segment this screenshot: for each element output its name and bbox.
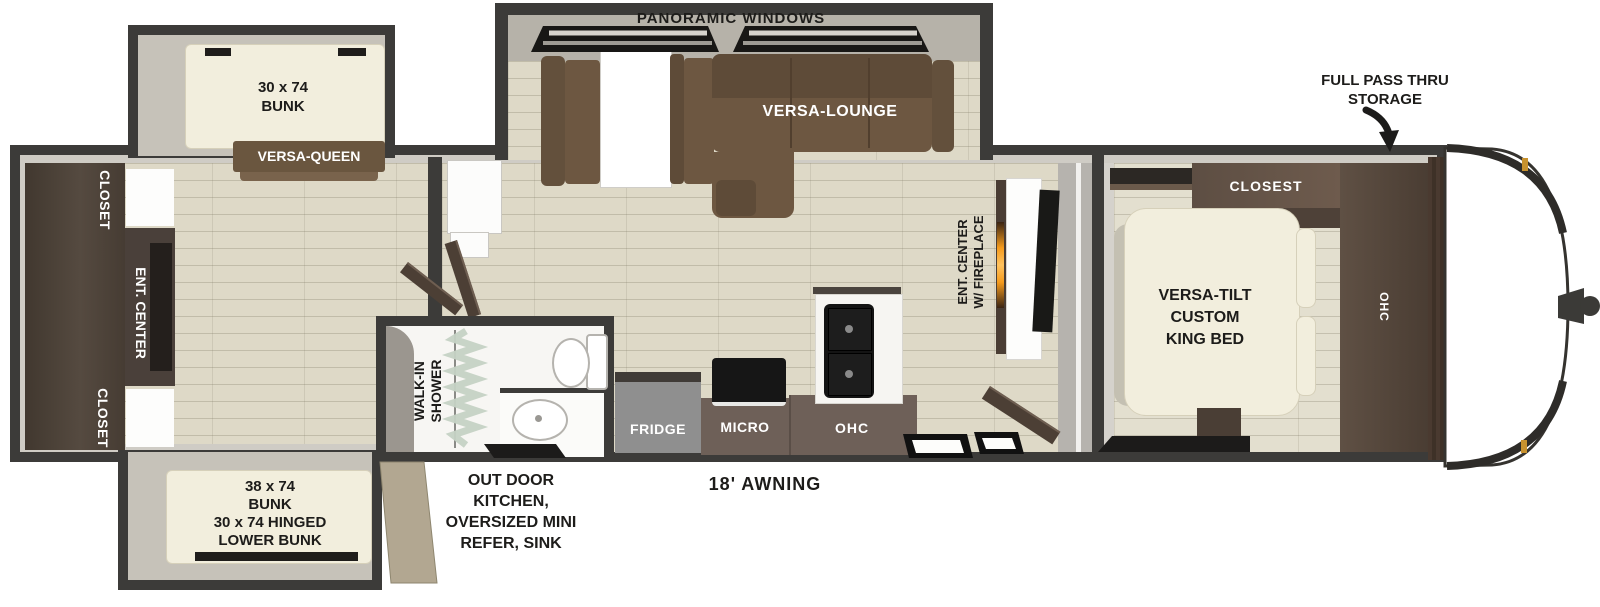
fridge-label: FRIDGE	[615, 421, 701, 437]
pass-thru-line2: STORAGE	[1300, 90, 1470, 109]
outdoor-kitchen-label: OUT DOOR KITCHEN, OVERSIZED MINI REFER, …	[420, 470, 602, 554]
bed-pillow-bottom	[1296, 316, 1316, 396]
ent-center-fireplace-label: ENT. CENTER W/ FIREPLACE	[955, 215, 987, 308]
fireplace-glow	[997, 222, 1004, 308]
ent-center-fireplace-line2: W/ FIREPLACE	[971, 215, 987, 308]
versa-queen-seat	[240, 172, 378, 181]
kitchen-ohc-label: OHC	[789, 420, 915, 436]
bottom-bunk-label-line4: LOWER BUNK	[170, 532, 370, 550]
top-bunk-label-line2: BUNK	[203, 97, 363, 116]
bed-pillow-top	[1296, 228, 1316, 308]
bottom-bunk-hardware	[195, 552, 358, 561]
bed-foot-bench	[1197, 408, 1241, 436]
king-bed-label-line1: VERSA-TILT	[1135, 285, 1275, 307]
marker-light-top	[1522, 158, 1528, 171]
outdoor-kitchen-line4: REFER, SINK	[420, 533, 602, 554]
king-bed-label: VERSA-TILT CUSTOM KING BED	[1135, 285, 1275, 351]
bottom-bunk-label: 38 x 74 BUNK 30 x 74 HINGED LOWER BUNK	[170, 478, 370, 550]
hitch-icon	[1558, 288, 1600, 324]
rear-ent-center-tv	[150, 243, 172, 371]
sofa-mid-seat	[684, 58, 714, 184]
king-bed-label-line3: KING BED	[1135, 329, 1275, 351]
bedroom-partition-wall	[1092, 153, 1104, 460]
toilet-bowl	[552, 338, 590, 388]
marker-light-bottom	[1521, 440, 1527, 453]
front-closet-label: CLOSEST	[1192, 178, 1340, 194]
rear-tv-panel-top	[126, 169, 174, 226]
bottom-bunk-label-line1: 38 x 74	[170, 478, 370, 496]
versa-queen-label: VERSA-QUEEN	[233, 148, 385, 164]
sofa-right-armrest	[932, 60, 954, 152]
bottom-bunk-label-line2: BUNK	[170, 496, 370, 514]
rear-ent-center-label: ENT. CENTER	[133, 267, 149, 359]
top-bunk-label-line1: 30 x 74	[203, 78, 363, 97]
micro-label: MICRO	[701, 419, 789, 435]
shower-wall	[386, 326, 414, 452]
trailer-front-cap	[1445, 148, 1568, 466]
sink-drain-bottom	[845, 370, 853, 378]
panoramic-windows-label: PANORAMIC WINDOWS	[600, 10, 862, 27]
entry-end-wall	[1058, 163, 1092, 452]
pass-thru-storage-floor	[1428, 157, 1448, 460]
versa-lounge-label: VERSA-LOUNGE	[740, 103, 920, 121]
top-bunk-hardware-left	[205, 48, 231, 56]
fridge-top	[615, 372, 701, 382]
sofa-mid-back	[670, 54, 684, 184]
walk-in-shower-line1: WALK-IN	[411, 360, 428, 423]
awning-label: 18' AWNING	[680, 474, 850, 495]
bedroom-ohc-label: OHC	[1377, 292, 1391, 322]
sofa-left-seat	[565, 60, 600, 184]
sofa-chaise-arm	[716, 180, 756, 216]
lounge-table	[600, 46, 672, 188]
bath-sink-drain	[535, 415, 542, 422]
rear-closet-bottom-label: CLOSET	[95, 388, 111, 448]
rear-tv-panel-bottom	[126, 389, 174, 447]
outdoor-kitchen-line2: KITCHEN,	[420, 491, 602, 512]
pass-thru-line1: FULL PASS THRU	[1300, 71, 1470, 90]
bottom-bunk-label-line3: 30 x 74 HINGED	[170, 514, 370, 532]
outdoor-kitchen-line3: OVERSIZED MINI	[420, 512, 602, 533]
rv-floorplan: 30 x 74 BUNK VERSA-QUEEN 38 x 74 BUNK 30…	[0, 0, 1600, 607]
sink-drain-top	[845, 325, 853, 333]
bedroom-lining	[1104, 163, 1114, 452]
counter-edge	[813, 287, 901, 294]
top-bunk-hardware-right	[338, 48, 366, 56]
walk-in-shower-label: WALK-IN SHOWER	[411, 360, 445, 423]
ent-center-fireplace-line1: ENT. CENTER	[955, 215, 971, 308]
microwave	[712, 358, 786, 406]
outdoor-kitchen-line1: OUT DOOR	[420, 470, 602, 491]
sofa-left-armrest	[541, 56, 565, 186]
hall-cabinet	[447, 160, 502, 234]
top-bunk-label: 30 x 74 BUNK	[203, 78, 363, 116]
fridge	[615, 382, 701, 453]
walk-in-shower-line2: SHOWER	[428, 360, 445, 423]
rear-closet-top-label: CLOSET	[97, 170, 113, 230]
pass-thru-storage-label: FULL PASS THRU STORAGE	[1300, 71, 1470, 109]
king-bed-label-line2: CUSTOM	[1135, 307, 1275, 329]
